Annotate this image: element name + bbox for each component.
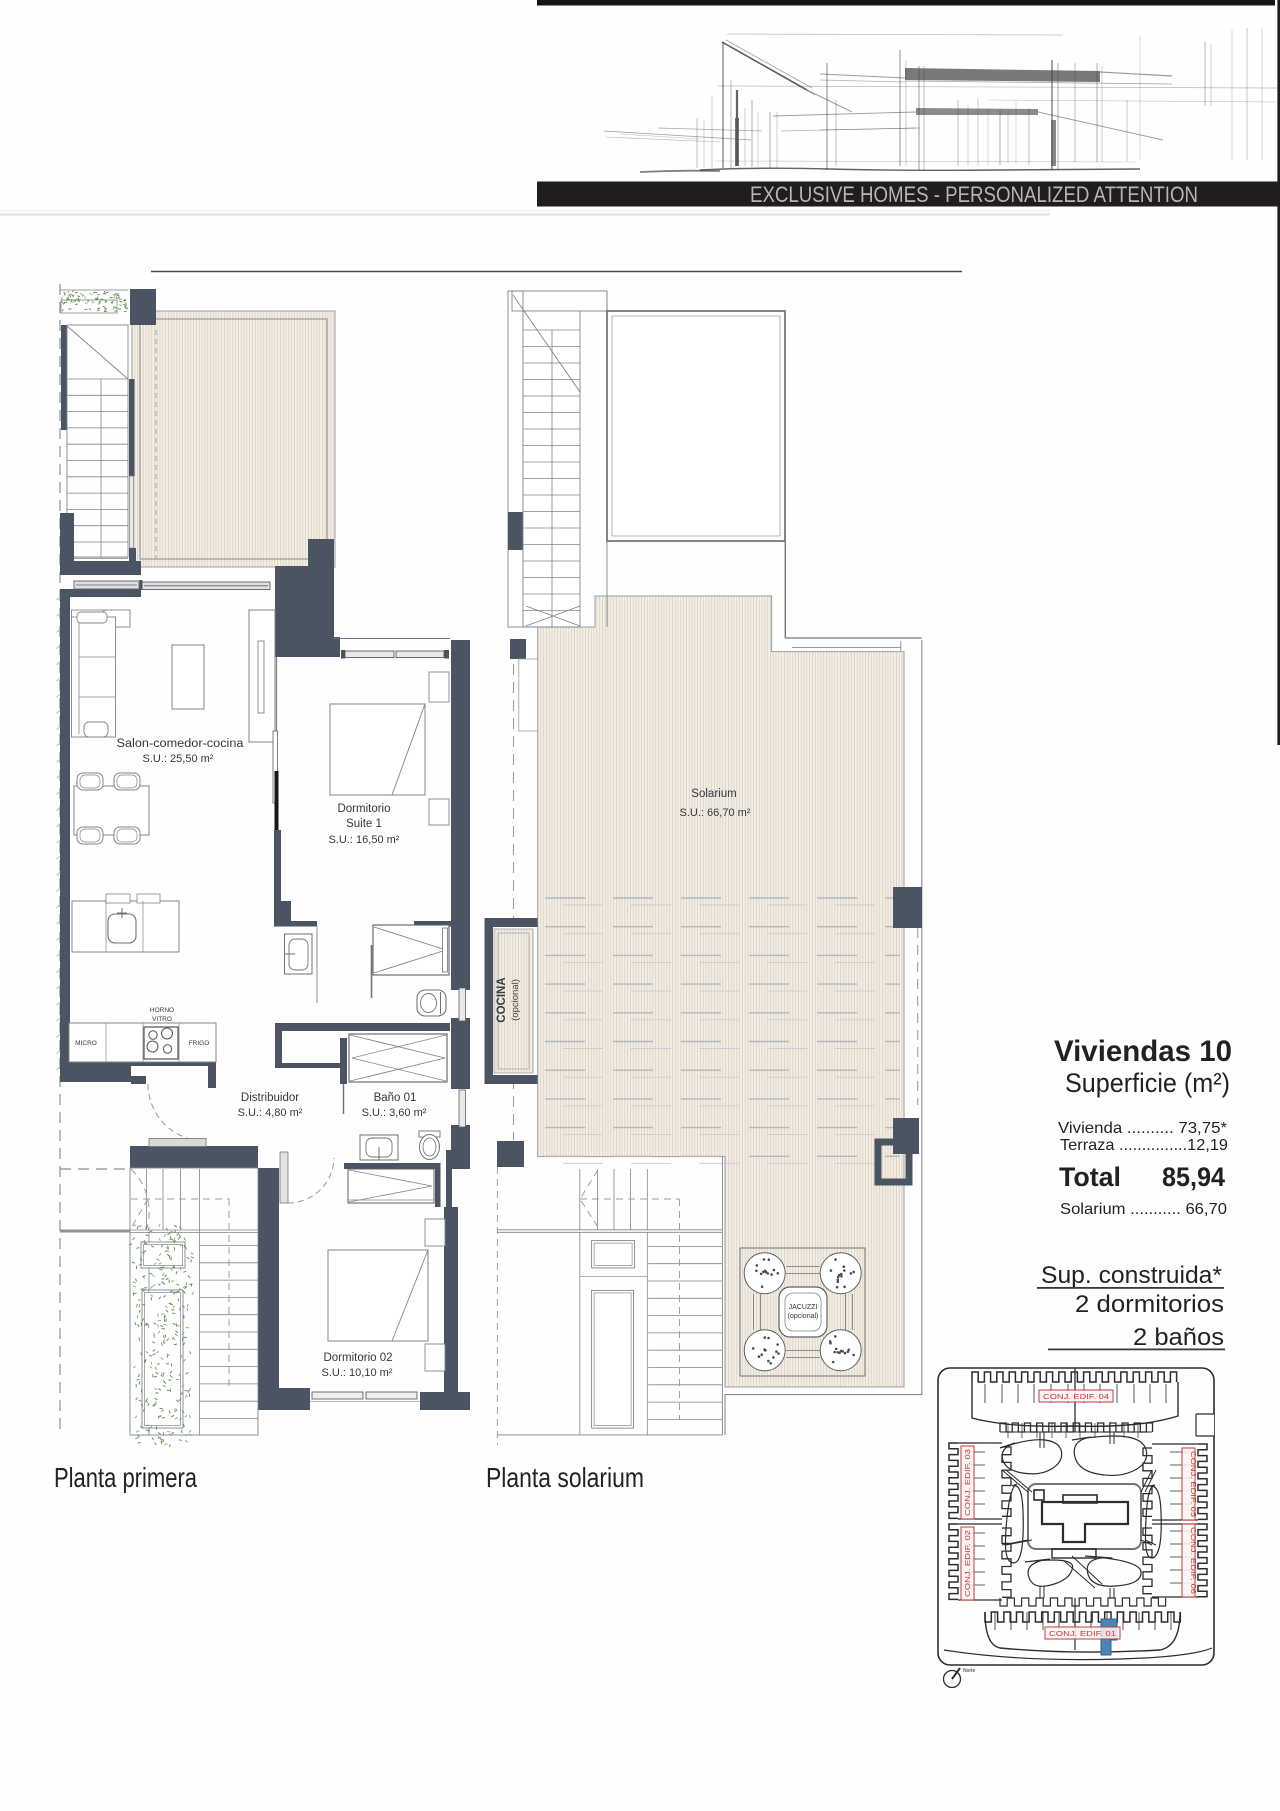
svg-text:2 baños: 2 baños	[1133, 1324, 1224, 1351]
svg-text:JACUZZI: JACUZZI	[789, 1304, 818, 1311]
svg-text:Dormitorio: Dormitorio	[337, 803, 390, 815]
svg-text:Sup. construida*: Sup. construida*	[1041, 1262, 1222, 1289]
svg-text:CONJ. EDIF. 06: CONJ. EDIF. 06	[1189, 1527, 1198, 1594]
svg-text:EXCLUSIVE HOMES - PERSONALIZED: EXCLUSIVE HOMES - PERSONALIZED ATTENTION	[750, 182, 1198, 207]
svg-text:Salon-comedor-cocina: Salon-comedor-cocina	[117, 738, 245, 750]
svg-text:Terraza ...............12,19: Terraza ...............12,19	[1060, 1137, 1228, 1154]
svg-text:Planta solarium: Planta solarium	[486, 1462, 644, 1493]
svg-text:Viviendas 10: Viviendas 10	[1054, 1035, 1232, 1068]
svg-text:CONJ. EDIF. 03: CONJ. EDIF. 03	[963, 1449, 972, 1516]
svg-text:S.U.: 16,50 m²: S.U.: 16,50 m²	[329, 834, 400, 846]
svg-text:Dormitorio 02: Dormitorio 02	[323, 1352, 392, 1364]
svg-text:Baño 01: Baño 01	[374, 1092, 417, 1104]
svg-text:Vivienda .......... 73,75*: Vivienda .......... 73,75*	[1058, 1120, 1227, 1137]
svg-text:Total: Total	[1059, 1162, 1121, 1192]
svg-text:HORNO: HORNO	[150, 1007, 174, 1014]
svg-text:(opcional): (opcional)	[788, 1313, 819, 1320]
svg-text:VITRO: VITRO	[152, 1016, 172, 1023]
svg-text:Distribuidor: Distribuidor	[241, 1092, 299, 1104]
svg-text:2 dormitorios: 2 dormitorios	[1075, 1291, 1224, 1318]
svg-text:S.U.: 66,70 m²: S.U.: 66,70 m²	[680, 807, 751, 819]
svg-text:Planta primera: Planta primera	[54, 1462, 197, 1493]
svg-text:CONJ. EDIF. 04: CONJ. EDIF. 04	[1043, 1392, 1109, 1401]
svg-text:S.U.: 25,50 m²: S.U.: 25,50 m²	[143, 753, 214, 765]
svg-text:MICRO: MICRO	[75, 1040, 97, 1047]
svg-text:Suite 1: Suite 1	[346, 818, 382, 830]
svg-text:COCINA: COCINA	[496, 977, 508, 1022]
svg-text:Norte: Norte	[963, 1668, 975, 1674]
svg-text:S.U.: 3,60 m²: S.U.: 3,60 m²	[362, 1107, 427, 1119]
svg-text:85,94: 85,94	[1162, 1162, 1225, 1192]
svg-text:Solarium ........... 66,70: Solarium ........... 66,70	[1060, 1201, 1227, 1218]
svg-text:Superficie (m²): Superficie (m²)	[1065, 1068, 1230, 1098]
svg-text:FRIGO: FRIGO	[189, 1040, 210, 1047]
svg-text:S.U.: 10,10 m²: S.U.: 10,10 m²	[322, 1367, 393, 1379]
svg-text:(opcional): (opcional)	[510, 979, 521, 1021]
svg-text:S.U.: 4,80 m²: S.U.: 4,80 m²	[238, 1107, 303, 1119]
svg-text:Solarium: Solarium	[691, 788, 736, 800]
svg-text:CONJ. EDIF. 05: CONJ. EDIF. 05	[1189, 1451, 1198, 1517]
svg-text:CONJ. EDIF. 01: CONJ. EDIF. 01	[1049, 1629, 1116, 1638]
svg-text:CONJ. EDIF. 02: CONJ. EDIF. 02	[963, 1530, 972, 1597]
